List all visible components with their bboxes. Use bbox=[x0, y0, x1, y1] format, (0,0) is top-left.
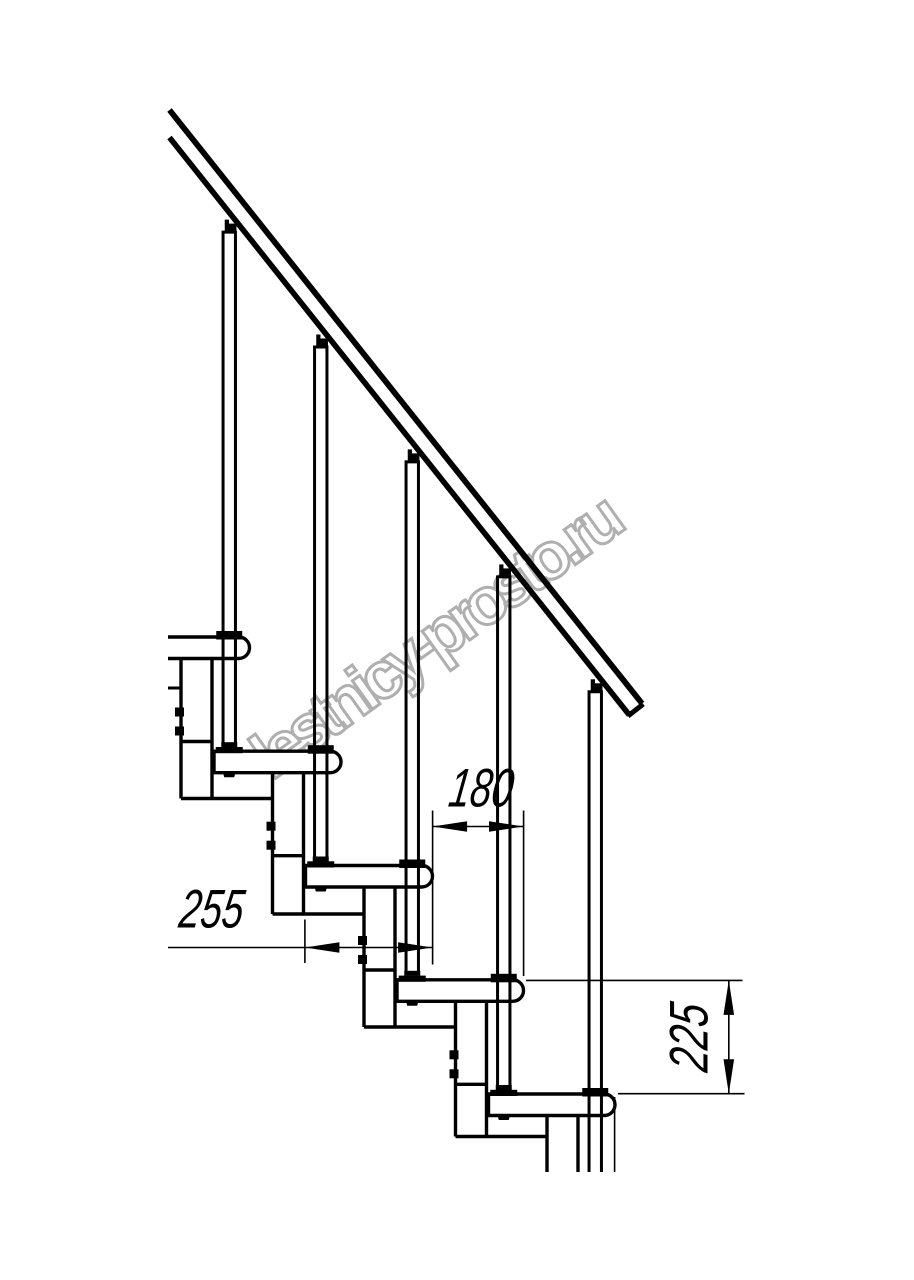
svg-text:180: 180 bbox=[445, 758, 517, 819]
svg-text:255: 255 bbox=[175, 879, 249, 940]
svg-text:225: 225 bbox=[659, 999, 720, 1076]
